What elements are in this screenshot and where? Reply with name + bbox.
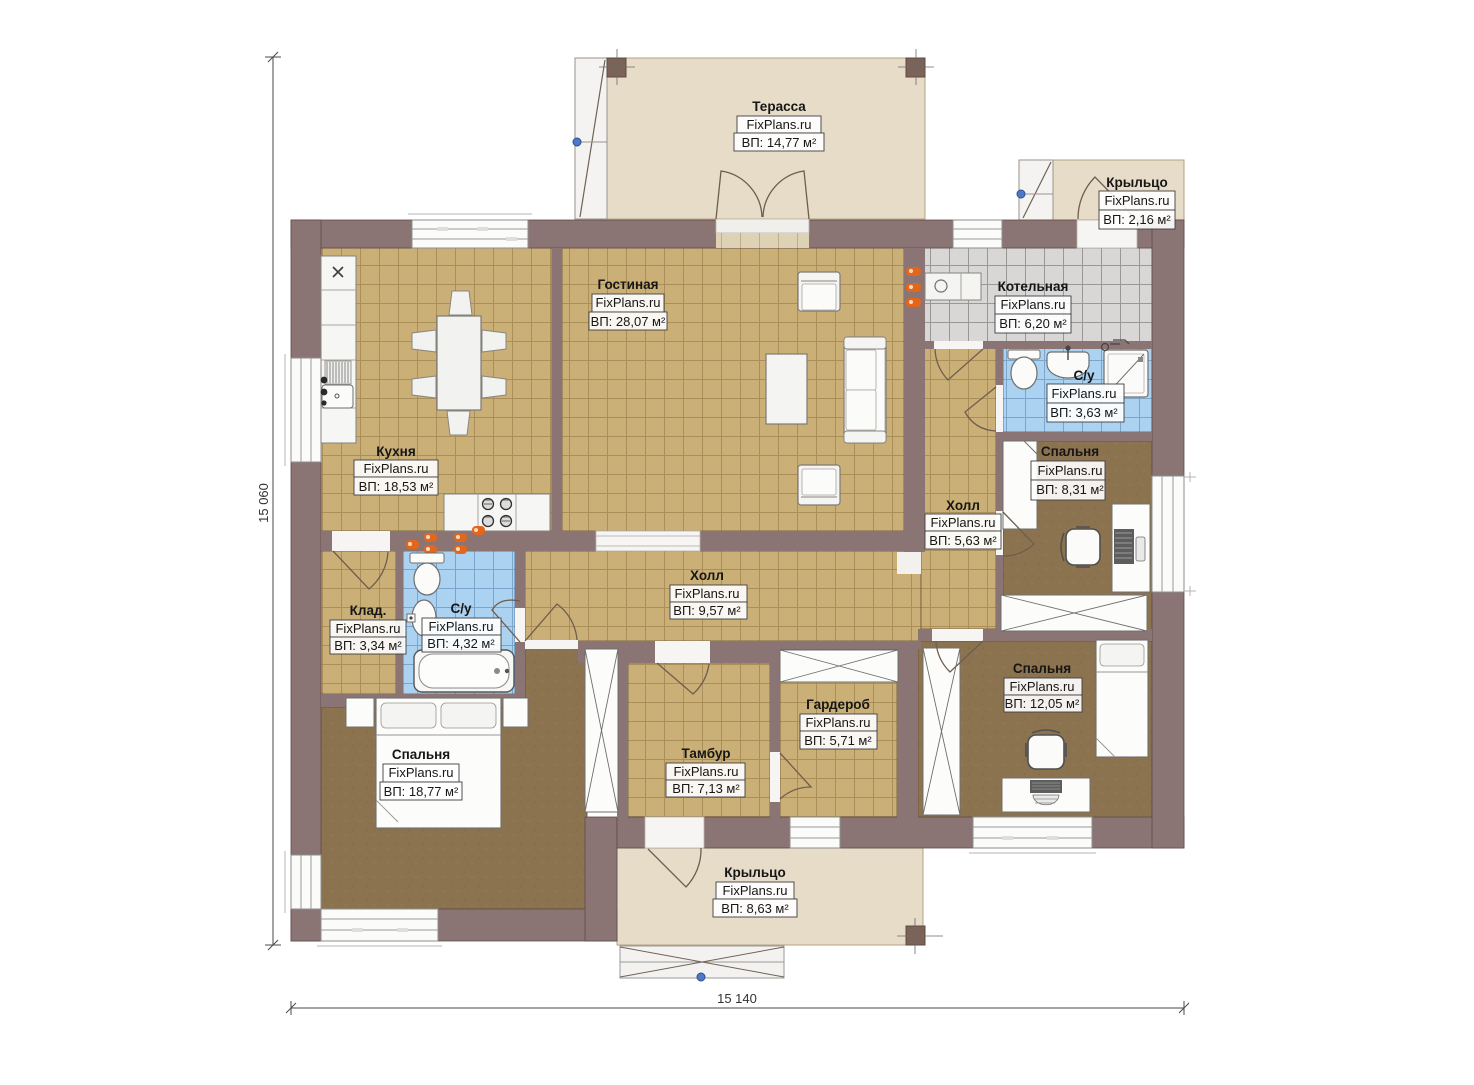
svg-text:Гостиная: Гостиная bbox=[597, 277, 658, 292]
svg-text:С/у: С/у bbox=[1073, 368, 1095, 383]
svg-text:FixPlans.ru: FixPlans.ru bbox=[1037, 463, 1102, 478]
svg-text:Кухня: Кухня bbox=[376, 444, 415, 459]
svg-text:ВП: 6,20 м²: ВП: 6,20 м² bbox=[999, 316, 1067, 331]
svg-text:FixPlans.ru: FixPlans.ru bbox=[363, 461, 428, 476]
svg-text:FixPlans.ru: FixPlans.ru bbox=[1051, 386, 1116, 401]
svg-text:FixPlans.ru: FixPlans.ru bbox=[930, 515, 995, 530]
svg-text:Холл: Холл bbox=[946, 498, 980, 513]
svg-text:FixPlans.ru: FixPlans.ru bbox=[674, 586, 739, 601]
svg-text:FixPlans.ru: FixPlans.ru bbox=[673, 764, 738, 779]
svg-text:Тамбур: Тамбур bbox=[682, 746, 731, 761]
svg-text:С/у: С/у bbox=[450, 601, 472, 616]
svg-text:Гардероб: Гардероб bbox=[806, 697, 870, 712]
svg-text:ВП: 3,63 м²: ВП: 3,63 м² bbox=[1050, 405, 1118, 420]
svg-text:Холл: Холл bbox=[690, 568, 724, 583]
svg-text:FixPlans.ru: FixPlans.ru bbox=[388, 765, 453, 780]
svg-text:Спальня: Спальня bbox=[1013, 661, 1071, 676]
svg-text:15 060: 15 060 bbox=[256, 483, 271, 523]
svg-text:FixPlans.ru: FixPlans.ru bbox=[1009, 679, 1074, 694]
svg-text:FixPlans.ru: FixPlans.ru bbox=[722, 883, 787, 898]
svg-text:ВП: 3,34 м²: ВП: 3,34 м² bbox=[334, 638, 402, 653]
svg-text:ВП: 4,32 м²: ВП: 4,32 м² bbox=[427, 636, 495, 651]
svg-text:ВП: 12,05 м²: ВП: 12,05 м² bbox=[1005, 696, 1080, 711]
svg-text:FixPlans.ru: FixPlans.ru bbox=[428, 619, 493, 634]
svg-text:ВП: 28,07 м²: ВП: 28,07 м² bbox=[591, 314, 666, 329]
svg-text:Спальня: Спальня bbox=[392, 747, 450, 762]
svg-text:ВП: 7,13 м²: ВП: 7,13 м² bbox=[672, 781, 740, 796]
svg-text:15 140: 15 140 bbox=[717, 991, 757, 1006]
svg-text:ВП: 18,53 м²: ВП: 18,53 м² bbox=[359, 479, 434, 494]
svg-text:FixPlans.ru: FixPlans.ru bbox=[1000, 297, 1065, 312]
svg-text:ВП: 14,77 м²: ВП: 14,77 м² bbox=[742, 135, 817, 150]
svg-text:FixPlans.ru: FixPlans.ru bbox=[1104, 193, 1169, 208]
svg-text:Терасса: Терасса bbox=[752, 99, 806, 114]
svg-text:ВП: 8,63 м²: ВП: 8,63 м² bbox=[721, 901, 789, 916]
svg-text:Спальня: Спальня bbox=[1041, 444, 1099, 459]
svg-text:Котельная: Котельная bbox=[998, 279, 1069, 294]
svg-text:Клад.: Клад. bbox=[350, 603, 387, 618]
svg-text:FixPlans.ru: FixPlans.ru bbox=[805, 715, 870, 730]
svg-text:Крыльцо: Крыльцо bbox=[1106, 175, 1167, 190]
svg-text:FixPlans.ru: FixPlans.ru bbox=[335, 621, 400, 636]
svg-text:ВП: 9,57 м²: ВП: 9,57 м² bbox=[673, 603, 741, 618]
svg-text:ВП: 8,31 м²: ВП: 8,31 м² bbox=[1036, 482, 1104, 497]
svg-text:ВП: 2,16 м²: ВП: 2,16 м² bbox=[1103, 212, 1171, 227]
svg-text:FixPlans.ru: FixPlans.ru bbox=[746, 117, 811, 132]
svg-text:ВП: 5,63 м²: ВП: 5,63 м² bbox=[929, 533, 997, 548]
svg-text:ВП: 18,77 м²: ВП: 18,77 м² bbox=[384, 784, 459, 799]
svg-text:ВП: 5,71 м²: ВП: 5,71 м² bbox=[804, 733, 872, 748]
svg-text:Крыльцо: Крыльцо bbox=[724, 865, 785, 880]
svg-text:FixPlans.ru: FixPlans.ru bbox=[595, 295, 660, 310]
